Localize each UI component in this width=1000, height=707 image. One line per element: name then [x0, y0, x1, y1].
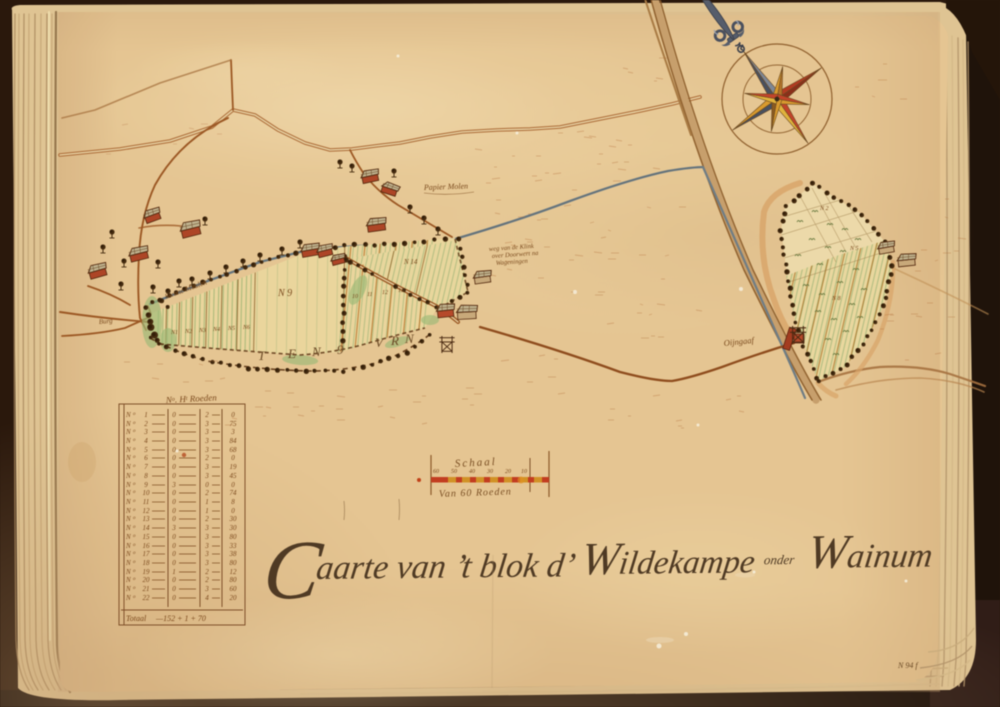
svg-text:N: N	[125, 437, 131, 445]
svg-text:10: 10	[352, 294, 358, 300]
svg-text:3: 3	[204, 420, 209, 428]
svg-text:0: 0	[172, 507, 176, 515]
svg-text:Schaal: Schaal	[455, 456, 498, 470]
svg-text:2: 2	[205, 489, 209, 497]
svg-text:0: 0	[172, 446, 176, 454]
svg-text:0: 0	[172, 463, 176, 471]
svg-text:20: 20	[230, 594, 238, 602]
svg-text:8: 8	[144, 472, 148, 480]
svg-text:0: 0	[172, 594, 176, 602]
svg-text:80: 80	[230, 559, 238, 567]
svg-text:22: 22	[143, 594, 151, 602]
svg-text:11: 11	[143, 498, 149, 506]
svg-text:N1: N1	[170, 330, 178, 336]
svg-text:N: N	[125, 559, 131, 567]
svg-text:N: N	[125, 446, 131, 454]
svg-text:N: N	[404, 331, 415, 346]
svg-text:84: 84	[230, 437, 238, 445]
svg-text:N: N	[125, 533, 131, 541]
svg-text:3: 3	[171, 481, 176, 489]
svg-text:0: 0	[231, 411, 235, 419]
svg-text:12: 12	[382, 290, 388, 296]
svg-text:20: 20	[505, 469, 511, 475]
svg-text:19: 19	[230, 463, 238, 471]
svg-text:N4: N4	[212, 326, 220, 333]
svg-text:N 94 f: N 94 f	[897, 661, 919, 670]
svg-text:N 9: N 9	[277, 288, 292, 299]
svg-text:T: T	[258, 348, 266, 363]
svg-text:N: N	[125, 428, 131, 436]
svg-text:N2: N2	[184, 329, 192, 335]
svg-text:Totaal: Totaal	[126, 614, 147, 623]
svg-text:12: 12	[230, 568, 238, 576]
svg-text:1: 1	[205, 498, 209, 506]
svg-text:68: 68	[230, 446, 238, 454]
svg-text:10: 10	[521, 469, 527, 475]
svg-text:E: E	[287, 346, 296, 361]
svg-text:N: N	[125, 576, 131, 584]
svg-text:60: 60	[230, 585, 238, 593]
svg-text:3: 3	[204, 533, 209, 541]
svg-text:33: 33	[229, 542, 238, 550]
svg-text:8: 8	[231, 498, 235, 506]
svg-text:3: 3	[204, 472, 209, 480]
svg-text:60: 60	[433, 469, 439, 475]
svg-text:9: 9	[337, 342, 344, 357]
svg-text:N: N	[125, 594, 131, 602]
svg-text:3: 3	[204, 446, 209, 454]
svg-text:N: N	[125, 472, 131, 480]
svg-text:N: N	[125, 489, 131, 497]
svg-text:1: 1	[205, 507, 209, 515]
svg-text:3: 3	[204, 463, 209, 471]
svg-text:13: 13	[143, 515, 151, 523]
svg-text:5: 5	[144, 446, 148, 454]
svg-text:0: 0	[172, 420, 176, 428]
svg-text:N 2: N 2	[819, 206, 829, 212]
svg-text:21: 21	[143, 585, 150, 593]
svg-text:18: 18	[143, 559, 151, 567]
svg-text:N: N	[125, 481, 131, 489]
svg-text:74: 74	[230, 489, 238, 497]
svg-text:4: 4	[144, 437, 148, 445]
svg-text:0: 0	[231, 454, 235, 462]
svg-text:N 8: N 8	[831, 296, 841, 302]
svg-text:0: 0	[172, 542, 176, 550]
svg-text:N: N	[125, 498, 131, 506]
svg-text:0: 0	[172, 489, 176, 497]
svg-text:12: 12	[143, 507, 151, 515]
svg-text:0: 0	[172, 472, 176, 480]
svg-text:3: 3	[204, 428, 209, 436]
svg-text:aarte van ’t blok d’: aarte van ’t blok d’	[314, 547, 577, 587]
svg-text:N: N	[311, 344, 322, 359]
svg-text:3: 3	[204, 524, 209, 532]
svg-text:2: 2	[205, 411, 209, 419]
svg-text:2: 2	[205, 576, 209, 584]
svg-text:3: 3	[204, 585, 209, 593]
svg-text:80: 80	[230, 533, 238, 541]
svg-text:0: 0	[172, 533, 176, 541]
svg-text:17: 17	[143, 550, 151, 558]
svg-text:Burg: Burg	[98, 317, 113, 326]
svg-text:7: 7	[144, 463, 148, 471]
svg-text:0: 0	[172, 585, 176, 593]
svg-text:N: N	[125, 507, 131, 515]
svg-text:N: N	[125, 568, 131, 576]
svg-text:N: N	[125, 542, 131, 550]
svg-text:N: N	[125, 515, 131, 523]
svg-text:38: 38	[229, 550, 238, 558]
svg-text:9: 9	[144, 481, 148, 489]
svg-text:N: N	[125, 454, 131, 462]
svg-text:R: R	[390, 333, 399, 348]
svg-text:30: 30	[229, 515, 238, 523]
svg-text:N: N	[125, 463, 131, 471]
svg-text:3: 3	[204, 559, 209, 567]
svg-text:N: N	[125, 420, 131, 428]
svg-text:N6: N6	[242, 325, 250, 331]
svg-text:onder: onder	[763, 552, 796, 567]
svg-text:45: 45	[230, 472, 238, 480]
svg-text:2: 2	[205, 515, 209, 523]
svg-text:14: 14	[143, 524, 151, 532]
svg-text:11: 11	[367, 292, 373, 298]
svg-text:0: 0	[172, 550, 176, 558]
svg-text:30: 30	[486, 469, 493, 475]
svg-text:0: 0	[231, 507, 235, 515]
svg-text:Papier Molen: Papier Molen	[423, 181, 469, 192]
svg-text:10: 10	[143, 489, 151, 497]
svg-text:0: 0	[172, 454, 176, 462]
svg-text:N: N	[125, 524, 131, 532]
svg-text:0: 0	[172, 515, 176, 523]
svg-text:0: 0	[172, 428, 176, 436]
svg-text:13: 13	[398, 288, 404, 294]
svg-text:N: N	[125, 585, 131, 593]
svg-text:3: 3	[204, 550, 209, 558]
svg-text:N 5: N 5	[849, 246, 859, 252]
svg-text:0: 0	[172, 576, 176, 584]
svg-text:80: 80	[230, 576, 238, 584]
svg-text:0: 0	[172, 498, 176, 506]
svg-text:N: N	[125, 550, 131, 558]
svg-text:3: 3	[204, 437, 209, 445]
svg-text:N5: N5	[227, 326, 235, 332]
svg-text:3: 3	[230, 428, 235, 436]
svg-text:0: 0	[172, 437, 176, 445]
svg-text:3: 3	[143, 428, 148, 436]
svg-text:2: 2	[205, 454, 209, 462]
svg-text:N3: N3	[198, 328, 206, 334]
svg-text:30: 30	[229, 524, 238, 532]
svg-text:0: 0	[205, 481, 209, 489]
svg-text:4: 4	[205, 594, 209, 602]
svg-text:—152 + 1 + 70: —152 + 1 + 70	[155, 614, 206, 623]
svg-text:16: 16	[143, 542, 151, 550]
svg-text:3: 3	[171, 524, 176, 532]
svg-text:2: 2	[144, 420, 148, 428]
svg-text:1: 1	[172, 568, 176, 576]
svg-text:1: 1	[144, 411, 148, 419]
svg-text:15: 15	[143, 533, 151, 541]
svg-text:2: 2	[205, 568, 209, 576]
svg-text:20: 20	[143, 576, 151, 584]
svg-text:3: 3	[204, 542, 209, 550]
svg-text:N 14: N 14	[403, 258, 418, 266]
svg-text:0: 0	[231, 481, 235, 489]
svg-text:0: 0	[172, 411, 176, 419]
svg-text:6: 6	[144, 454, 148, 462]
svg-text:75: 75	[230, 420, 238, 428]
svg-text:N: N	[125, 411, 131, 419]
svg-text:0: 0	[172, 559, 176, 567]
svg-text:19: 19	[143, 568, 151, 576]
